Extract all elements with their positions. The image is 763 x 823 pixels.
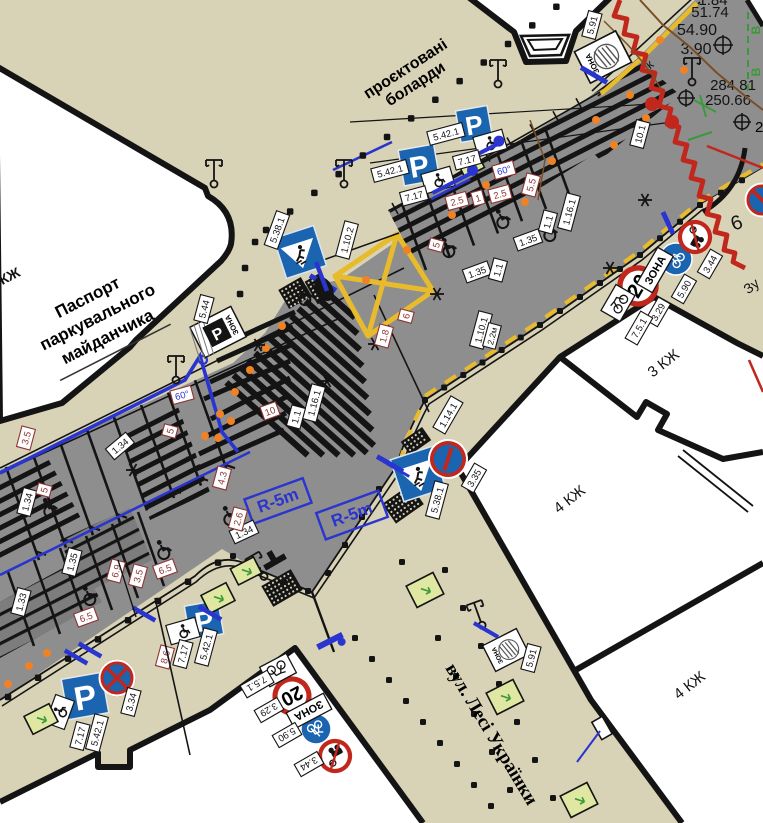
svg-text:2: 2 bbox=[755, 119, 763, 136]
svg-text:В: В bbox=[749, 67, 763, 76]
svg-text:54.90: 54.90 bbox=[677, 22, 717, 39]
svg-text:В: В bbox=[749, 25, 763, 34]
svg-text:51.74: 51.74 bbox=[691, 4, 729, 21]
